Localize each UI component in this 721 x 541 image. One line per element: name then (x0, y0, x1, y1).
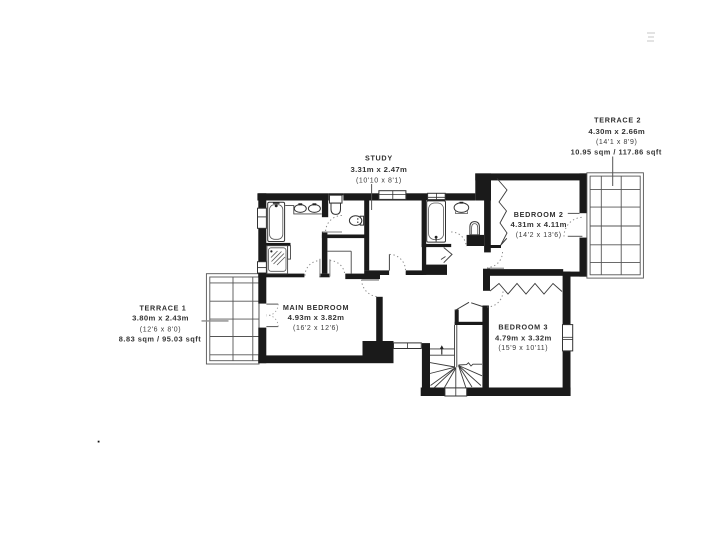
svg-text:TERRACE 2: TERRACE 2 (594, 115, 641, 124)
svg-text:4.93m x 3.82m: 4.93m x 3.82m (288, 313, 345, 322)
svg-text:STUDY: STUDY (365, 154, 393, 163)
svg-text:(15'9 x 10'11): (15'9 x 10'11) (498, 345, 548, 352)
svg-text:MAIN BEDROOM: MAIN BEDROOM (283, 303, 349, 312)
svg-text:3.80m x 2.43m: 3.80m x 2.43m (132, 313, 189, 322)
svg-text:4.79m x 3.32m: 4.79m x 3.32m (495, 333, 552, 342)
svg-text:4.31m x 4.11m: 4.31m x 4.11m (511, 220, 567, 229)
svg-text:4.30m x 2.66m: 4.30m x 2.66m (588, 127, 645, 136)
svg-text:(14'1 x 8'9): (14'1 x 8'9) (596, 139, 637, 146)
svg-text:(10'10 x 8'1): (10'10 x 8'1) (356, 178, 402, 185)
svg-text:BEDROOM 3: BEDROOM 3 (498, 322, 548, 331)
svg-text:(16'2 x 12'6): (16'2 x 12'6) (293, 325, 339, 332)
svg-text:(14'2 x 13'6): (14'2 x 13'6) (516, 232, 562, 239)
svg-text:10.95 sqm / 117.86 sqft: 10.95 sqm / 117.86 sqft (571, 147, 662, 156)
svg-text:8.83 sqm / 95.03 sqft: 8.83 sqm / 95.03 sqft (119, 335, 201, 344)
svg-text:BEDROOM 2: BEDROOM 2 (514, 210, 564, 219)
svg-text:3.31m x 2.47m: 3.31m x 2.47m (350, 165, 407, 174)
svg-text:(12'6 x 8'0): (12'6 x 8'0) (140, 327, 181, 334)
svg-text:TERRACE 1: TERRACE 1 (139, 304, 186, 313)
